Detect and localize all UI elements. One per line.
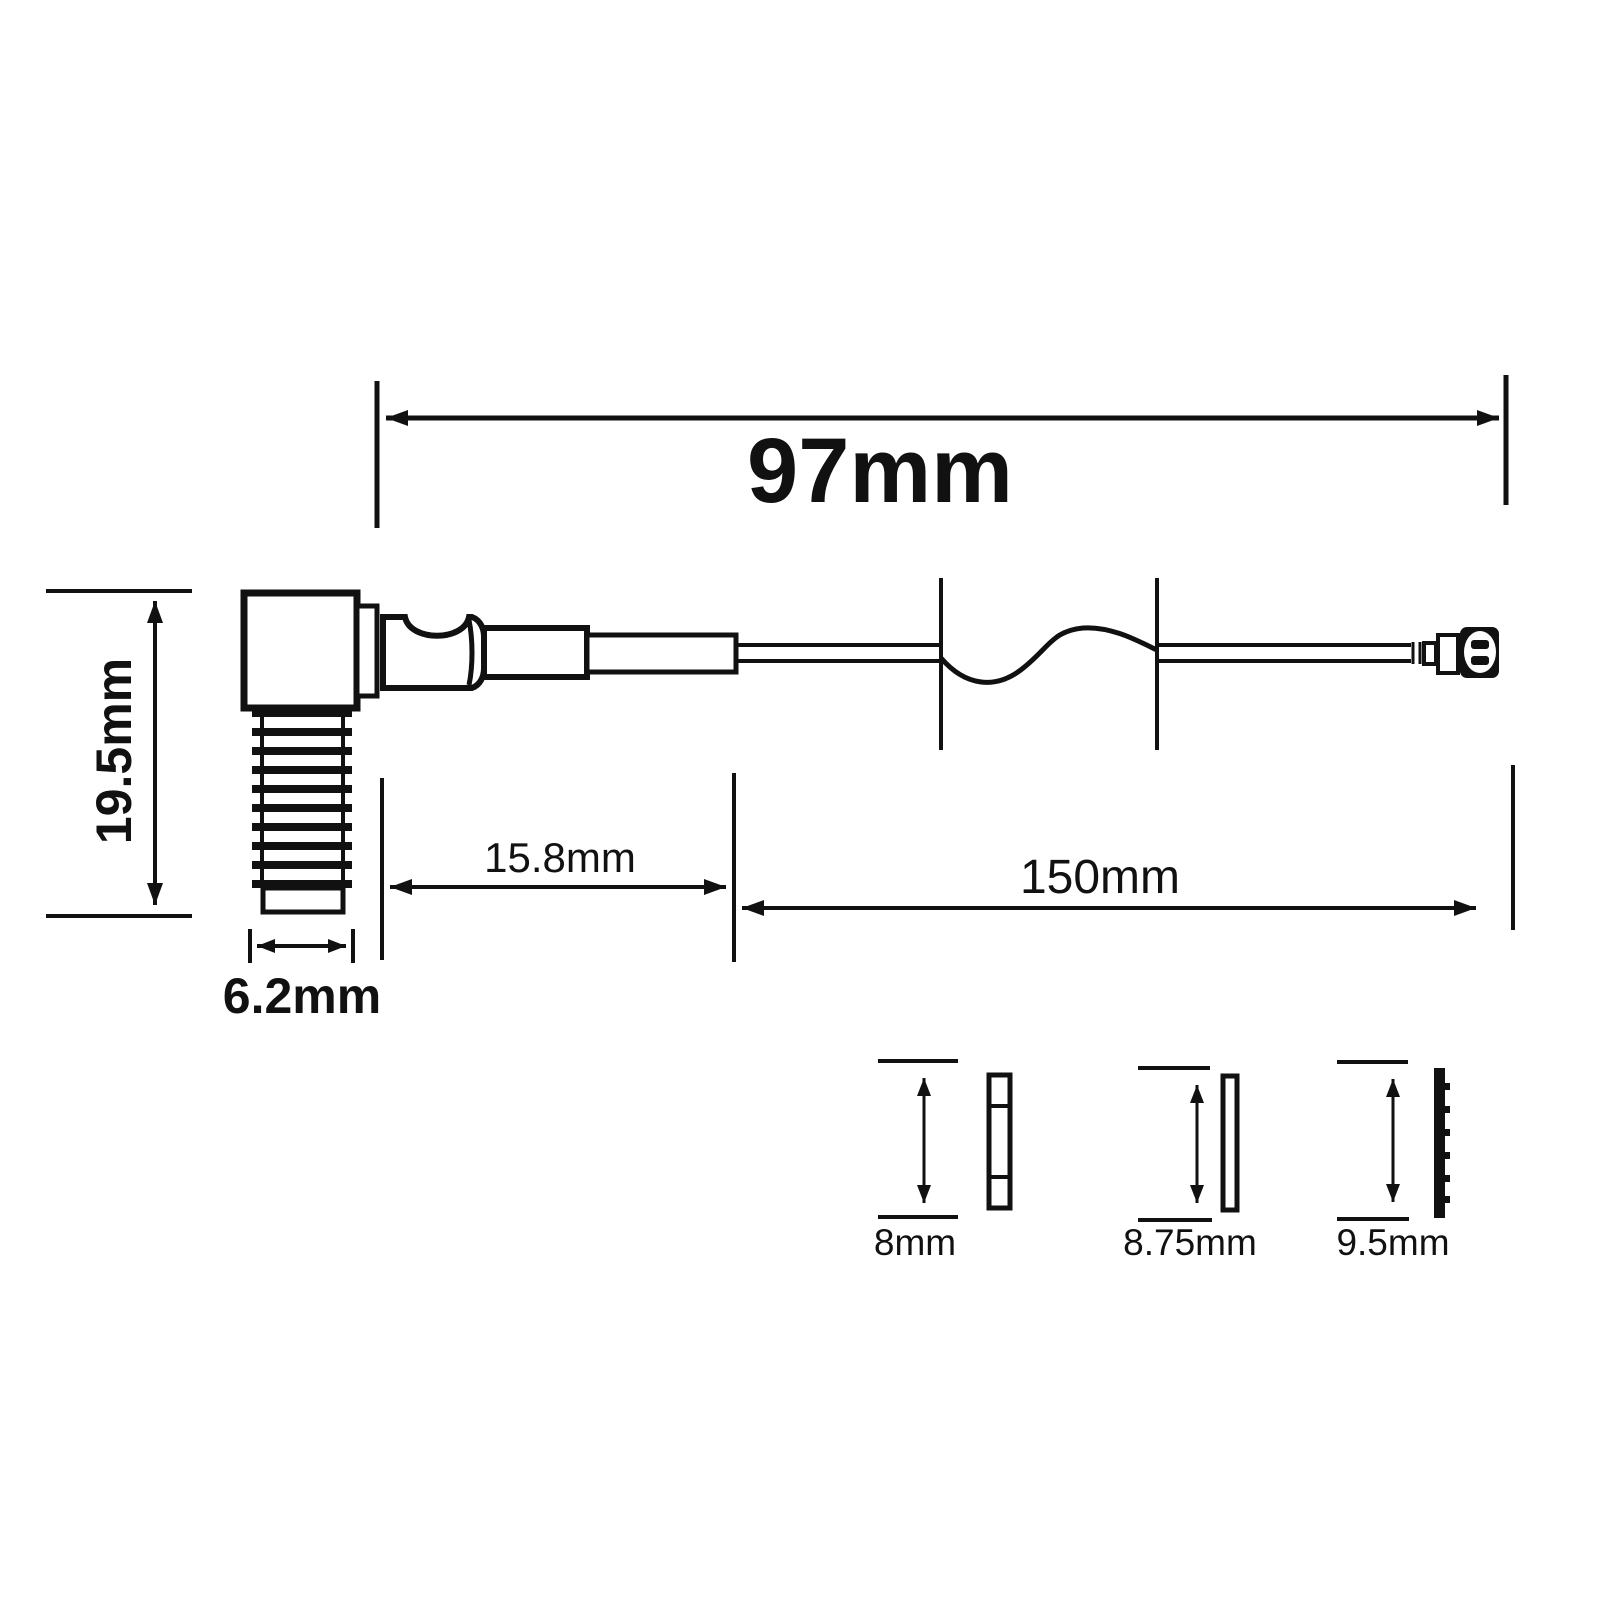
part-outline	[1223, 1076, 1237, 1210]
part-outline	[989, 1075, 1010, 1208]
drawing-canvas: 97mm 19.5mm 6.2mm	[0, 0, 1600, 1600]
part-8mm: 8mm	[874, 1061, 1010, 1263]
ipex-socket	[1464, 631, 1496, 673]
cable	[736, 578, 1411, 750]
thread-collar	[263, 888, 343, 912]
dimension-overall-97mm: 97mm	[377, 375, 1506, 528]
dimension-label-thread: 6.2mm	[223, 968, 381, 1024]
ipex-connector	[1413, 627, 1499, 678]
strain-relief	[587, 635, 736, 672]
dimension-thread-6-2mm: 6.2mm	[223, 929, 381, 1024]
part-teeth	[1445, 1083, 1450, 1203]
dimension-body-15-8mm: 15.8mm	[382, 773, 734, 962]
sma-flange	[357, 606, 377, 696]
sma-body	[244, 593, 357, 708]
part-label: 8mm	[874, 1222, 956, 1263]
ipex-step	[1424, 643, 1436, 664]
part-9-5mm: 9.5mm	[1336, 1062, 1450, 1263]
dimension-drawing-svg: 97mm 19.5mm 6.2mm	[0, 0, 1600, 1600]
ipex-contact-top	[1471, 640, 1489, 649]
dimension-label-height: 19.5mm	[86, 658, 142, 844]
ipex-collar	[1438, 635, 1458, 673]
dimension-label-cable: 150mm	[1020, 851, 1180, 904]
part-bar	[1434, 1068, 1445, 1218]
part-label: 8.75mm	[1123, 1222, 1257, 1263]
sma-ferrule	[484, 628, 587, 677]
dimension-label-body: 15.8mm	[484, 834, 636, 881]
ipex-contact-bottom	[1471, 656, 1489, 665]
dimension-label-overall: 97mm	[747, 420, 1013, 522]
part-label: 9.5mm	[1336, 1222, 1449, 1263]
dimension-height-19-5mm: 19.5mm	[46, 591, 192, 916]
dimension-cable-150mm: 150mm	[742, 765, 1513, 930]
thread-ridges	[252, 713, 352, 884]
part-8-75mm: 8.75mm	[1123, 1068, 1257, 1263]
break-s-curve	[941, 628, 1157, 682]
